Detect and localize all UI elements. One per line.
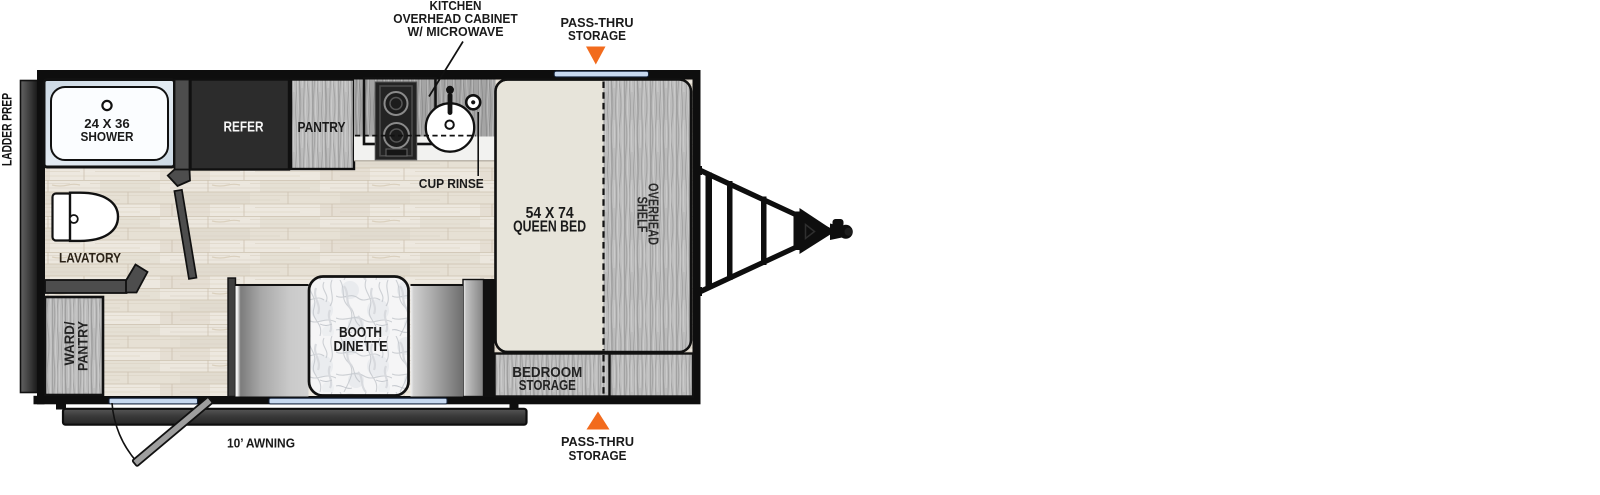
svg-text:W/ MICROWAVE: W/ MICROWAVE	[408, 24, 504, 39]
svg-text:STORAGE: STORAGE	[519, 377, 576, 394]
svg-text:QUEEN BED: QUEEN BED	[513, 219, 586, 236]
svg-text:PANTRY: PANTRY	[298, 119, 346, 136]
svg-text:LADDER PREP: LADDER PREP	[0, 93, 15, 166]
svg-text:STORAGE: STORAGE	[569, 448, 627, 463]
svg-text:SHOWER: SHOWER	[81, 129, 135, 144]
svg-text:LAVATORY: LAVATORY	[59, 250, 122, 266]
svg-text:10’ AWNING: 10’ AWNING	[227, 435, 295, 450]
svg-text:STORAGE: STORAGE	[568, 28, 626, 43]
svg-text:CUP RINSE: CUP RINSE	[419, 176, 484, 191]
svg-text:SHELF: SHELF	[634, 197, 650, 233]
svg-text:DINETTE: DINETTE	[334, 338, 388, 355]
svg-text:PANTRY: PANTRY	[76, 321, 91, 371]
svg-text:REFER: REFER	[224, 119, 264, 136]
